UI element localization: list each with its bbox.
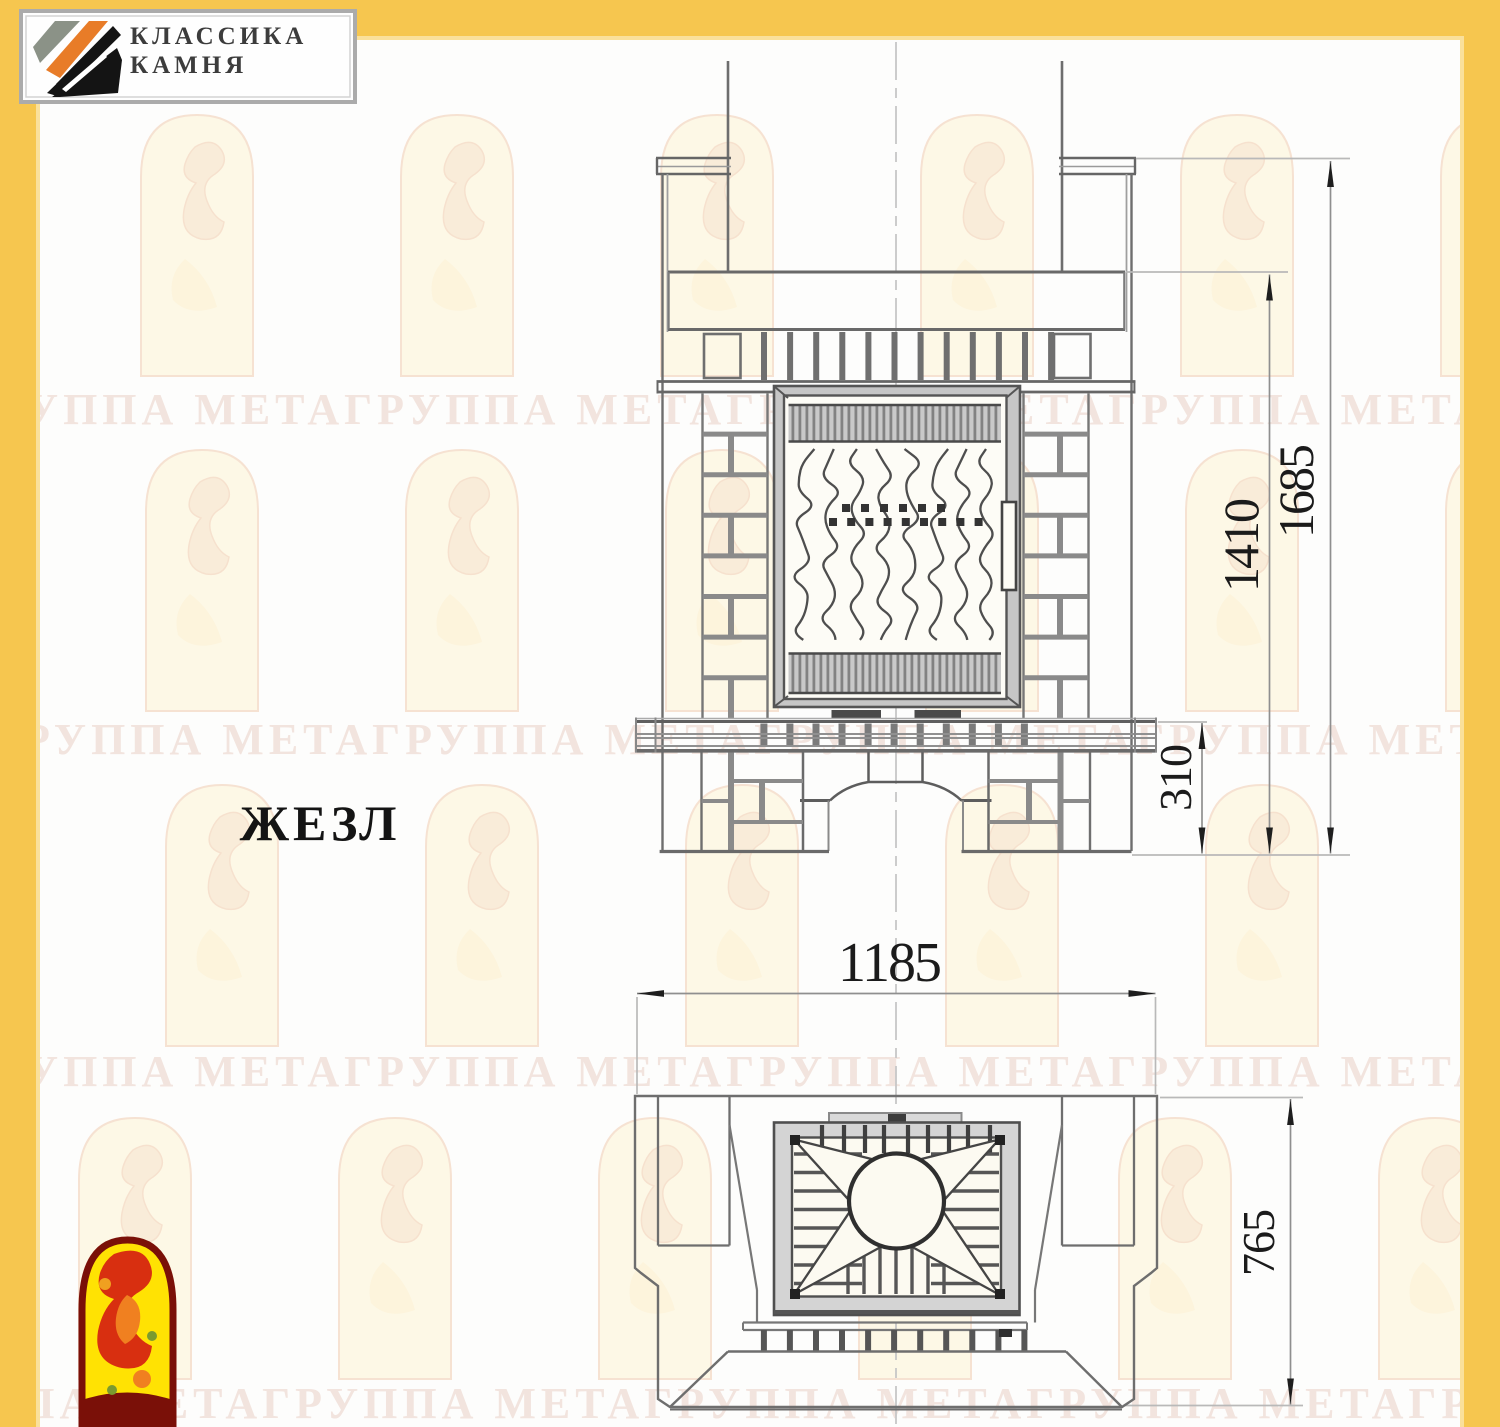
svg-text:ГРУППА МЕТАГРУППА МЕТАГРУППА М: ГРУППА МЕТАГРУППА МЕТАГРУППА МЕТАГРУППА …	[0, 1047, 1500, 1096]
svg-text:1410: 1410	[1213, 499, 1269, 592]
svg-text:765: 765	[1233, 1210, 1284, 1276]
svg-text:1185: 1185	[838, 932, 940, 994]
svg-text:КЛАССИКА: КЛАССИКА	[130, 23, 307, 50]
svg-text:310: 310	[1150, 745, 1201, 811]
svg-text:ЖЕЗЛ: ЖЕЗЛ	[240, 795, 401, 851]
svg-text:ГРУППА МЕТАГРУППА МЕТАГРУППА М: ГРУППА МЕТАГРУППА МЕТАГРУППА МЕТАГРУППА …	[0, 1379, 1473, 1427]
svg-text:1685: 1685	[1268, 445, 1324, 538]
svg-text:КАМНЯ: КАМНЯ	[130, 52, 247, 79]
